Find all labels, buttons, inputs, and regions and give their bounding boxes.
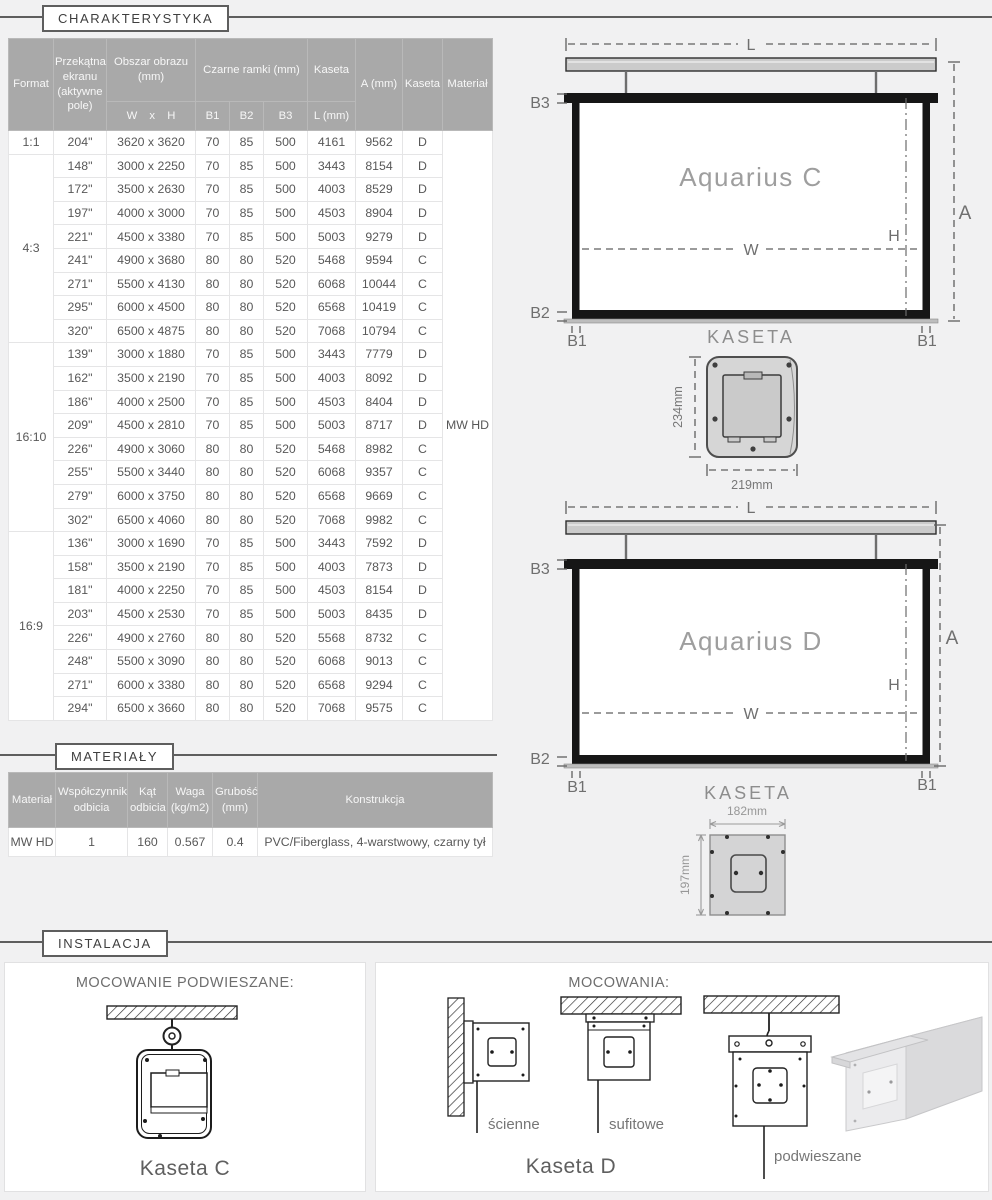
col-material: Materiał — [443, 39, 493, 131]
cell-b1: 80 — [196, 673, 230, 697]
b3-annotation: B3 — [530, 560, 567, 578]
cell-b2: 85 — [230, 178, 264, 202]
cell-image-area: 4900 x 3680 — [107, 248, 196, 272]
spec-row: 221"4500 x 3380708550050039279D — [9, 225, 493, 249]
col-b1: B1 — [196, 102, 230, 131]
cell-image-area: 4900 x 3060 — [107, 437, 196, 461]
spec-row: 226"4900 x 2760808052055688732C — [9, 626, 493, 650]
cell-image-area: 4900 x 2760 — [107, 626, 196, 650]
spec-row: 302"6500 x 4060808052070689982C — [9, 508, 493, 532]
cell-kaseta-type: D — [403, 579, 443, 603]
width-dimension: 219mm — [707, 464, 797, 492]
cell-image-area: 5500 x 4130 — [107, 272, 196, 296]
cell-b1: 80 — [196, 484, 230, 508]
cell-a: 9013 — [356, 650, 403, 674]
cassette-bar — [566, 58, 936, 94]
cell-l: 7068 — [308, 697, 356, 721]
spec-row: 295"6000 x 45008080520656810419C — [9, 296, 493, 320]
cell-l: 5003 — [308, 602, 356, 626]
cell-b1: 80 — [196, 296, 230, 320]
cell-l: 6568 — [308, 673, 356, 697]
cell-image-area: 6500 x 4060 — [107, 508, 196, 532]
col-b3: B3 — [264, 102, 308, 131]
cell-image-area: 5500 x 3090 — [107, 650, 196, 674]
cell-b2: 85 — [230, 602, 264, 626]
cell-a: 10419 — [356, 296, 403, 320]
ceiling-mount-drawing: sufitowe — [561, 997, 681, 1133]
cell-b2: 80 — [230, 248, 264, 272]
width-dimension — [710, 819, 785, 829]
cell-a: 7779 — [356, 343, 403, 367]
cell-l: 3443 — [308, 343, 356, 367]
cell-b3: 500 — [264, 390, 308, 414]
spec-row: 16:10139"3000 x 1880708550034437779D — [9, 343, 493, 367]
kaseta-d-mounting-drawings: ścienne sufitowe — [376, 991, 988, 1189]
cell-a: 8092 — [356, 366, 403, 390]
spec-row: 16:9136"3000 x 1690708550034437592D — [9, 532, 493, 556]
cell-a: 8904 — [356, 201, 403, 225]
cassette-bar — [566, 521, 936, 560]
reflection-cell: 1 — [56, 828, 128, 857]
material-row: MW HD 1 160 0.567 0.4 PVC/Fiberglass, 4-… — [9, 828, 493, 857]
h-label: H — [888, 677, 900, 694]
cross-height-label: 197mm — [678, 855, 692, 895]
cassette-3d-render — [832, 1017, 982, 1131]
cell-b3: 520 — [264, 508, 308, 532]
cell-b1: 80 — [196, 461, 230, 485]
cell-l: 6568 — [308, 296, 356, 320]
cell-diagonal: 255" — [54, 461, 107, 485]
cell-b3: 500 — [264, 343, 308, 367]
a-dimension: A — [948, 62, 972, 321]
cell-b1: 70 — [196, 555, 230, 579]
b1-left-label: B1 — [567, 779, 587, 796]
cell-b3: 520 — [264, 697, 308, 721]
cell-l: 6568 — [308, 484, 356, 508]
cell-b1: 70 — [196, 131, 230, 155]
cell-b2: 85 — [230, 343, 264, 367]
col-construction: Konstrukcja — [258, 773, 493, 828]
cell-l: 6068 — [308, 650, 356, 674]
spec-row: 158"3500 x 2190708550040037873D — [9, 555, 493, 579]
cell-a: 7592 — [356, 532, 403, 556]
cell-b3: 520 — [264, 461, 308, 485]
height-dimension: 197mm — [678, 835, 706, 915]
cell-kaseta-type: D — [403, 390, 443, 414]
cell-diagonal: 181" — [54, 579, 107, 603]
cell-image-area: 4000 x 2500 — [107, 390, 196, 414]
b3-label: B3 — [530, 95, 550, 112]
screen — [564, 93, 938, 323]
format-cell: 16:9 — [9, 532, 54, 721]
cell-a: 10044 — [356, 272, 403, 296]
b2-annotation: B2 — [530, 305, 567, 322]
cell-diagonal: 197" — [54, 201, 107, 225]
cell-a: 7873 — [356, 555, 403, 579]
cell-image-area: 3000 x 2250 — [107, 154, 196, 178]
cell-diagonal: 162" — [54, 366, 107, 390]
a-label: A — [946, 628, 959, 649]
spec-table: Format Przekątna ekranu (aktywne pole) O… — [8, 38, 493, 721]
kaseta-d-cross-section: 182mm 197mm — [655, 800, 845, 940]
spec-row: 172"3500 x 2630708550040038529D — [9, 178, 493, 202]
l-label: L — [747, 500, 756, 517]
cell-l: 6068 — [308, 461, 356, 485]
ceiling — [107, 1006, 237, 1019]
w-label: W — [743, 706, 759, 723]
cell-kaseta-type: C — [403, 437, 443, 461]
cross-width-label: 182mm — [727, 804, 767, 818]
spec-row: 226"4900 x 3060808052054688982C — [9, 437, 493, 461]
cassette-d-body — [710, 835, 785, 915]
col-a-mm: A (mm) — [356, 39, 403, 131]
cell-a: 8982 — [356, 437, 403, 461]
cell-b2: 85 — [230, 390, 264, 414]
cell-kaseta-type: C — [403, 272, 443, 296]
cell-b1: 70 — [196, 602, 230, 626]
cell-a: 10794 — [356, 319, 403, 343]
cell-b3: 520 — [264, 272, 308, 296]
b1-right-label: B1 — [917, 777, 937, 794]
cell-kaseta-type: D — [403, 532, 443, 556]
spec-row: 197"4000 x 3000708550045038904D — [9, 201, 493, 225]
cell-b3: 500 — [264, 555, 308, 579]
col-image-area: Obszar obrazu (mm) — [107, 39, 196, 102]
cell-a: 9279 — [356, 225, 403, 249]
cell-image-area: 3500 x 2190 — [107, 555, 196, 579]
col-material: Materiał — [9, 773, 56, 828]
cell-kaseta-type: C — [403, 319, 443, 343]
spec-sheet-page: CHARAKTERYSTYKA Format Przekątna ekranu … — [0, 0, 992, 1200]
format-cell: 1:1 — [9, 131, 54, 155]
cassette — [137, 1050, 211, 1138]
cell-b3: 520 — [264, 319, 308, 343]
cell-image-area: 4500 x 2530 — [107, 602, 196, 626]
cell-b3: 500 — [264, 366, 308, 390]
cell-l: 5003 — [308, 225, 356, 249]
cell-kaseta-type: C — [403, 697, 443, 721]
col-wxh: W x H — [107, 102, 196, 131]
installation-box-kaseta-c: MOCOWANIE PODWIESZANE: — [4, 962, 366, 1192]
cell-b2: 80 — [230, 626, 264, 650]
l-label: L — [747, 37, 756, 54]
col-black-borders: Czarne ramki (mm) — [196, 39, 308, 102]
cell-b2: 80 — [230, 673, 264, 697]
material-cell: MW HD — [9, 828, 56, 857]
screen-title: Aquarius D — [679, 626, 823, 656]
cell-diagonal: 226" — [54, 437, 107, 461]
col-thickness: Grubość (mm) — [213, 773, 258, 828]
cell-image-area: 3500 x 2190 — [107, 366, 196, 390]
spec-row: 181"4000 x 2250708550045038154D — [9, 579, 493, 603]
col-diagonal: Przekątna ekranu (aktywne pole) — [54, 39, 107, 131]
cell-a: 9562 — [356, 131, 403, 155]
weight-cell: 0.567 — [168, 828, 213, 857]
cell-l: 7068 — [308, 319, 356, 343]
cell-diagonal: 241" — [54, 248, 107, 272]
cell-image-area: 6500 x 4875 — [107, 319, 196, 343]
cell-b2: 80 — [230, 437, 264, 461]
cell-b3: 520 — [264, 673, 308, 697]
thickness-cell: 0.4 — [213, 828, 258, 857]
spec-table-body: 1:1204"3620 x 3620708550041619562DMW HD4… — [9, 131, 493, 721]
screen — [564, 559, 938, 768]
spec-row: 279"6000 x 3750808052065689669C — [9, 484, 493, 508]
cell-kaseta-type: D — [403, 178, 443, 202]
cell-l: 4161 — [308, 131, 356, 155]
cell-b2: 85 — [230, 414, 264, 438]
cell-kaseta-type: D — [403, 414, 443, 438]
cell-b1: 70 — [196, 390, 230, 414]
cell-diagonal: 302" — [54, 508, 107, 532]
format-cell: 16:10 — [9, 343, 54, 532]
cell-diagonal: 136" — [54, 532, 107, 556]
cell-b1: 80 — [196, 437, 230, 461]
cell-b2: 85 — [230, 532, 264, 556]
spec-row: 162"3500 x 2190708550040038092D — [9, 366, 493, 390]
kaseta-c-suspended-drawing — [5, 999, 365, 1151]
cell-kaseta-type: C — [403, 248, 443, 272]
cell-b3: 520 — [264, 248, 308, 272]
cell-l: 7068 — [308, 508, 356, 532]
mounting-title: MOCOWANIE PODWIESZANE: — [5, 975, 365, 991]
cell-b3: 500 — [264, 414, 308, 438]
cell-kaseta-type: C — [403, 296, 443, 320]
cell-diagonal: 139" — [54, 343, 107, 367]
cell-image-area: 4000 x 3000 — [107, 201, 196, 225]
w-label: W — [743, 242, 759, 259]
ceiling-mount-label: sufitowe — [609, 1116, 664, 1133]
cell-b3: 500 — [264, 602, 308, 626]
cell-a: 9594 — [356, 248, 403, 272]
cell-b1: 70 — [196, 154, 230, 178]
cell-b2: 80 — [230, 272, 264, 296]
cell-b3: 520 — [264, 626, 308, 650]
cell-diagonal: 158" — [54, 555, 107, 579]
cell-b2: 85 — [230, 555, 264, 579]
spec-row: 271"6000 x 3380808052065689294C — [9, 673, 493, 697]
cell-b3: 500 — [264, 225, 308, 249]
cell-b3: 500 — [264, 579, 308, 603]
cell-image-area: 3000 x 1690 — [107, 532, 196, 556]
cell-diagonal: 148" — [54, 154, 107, 178]
section-title-charakterystyka: CHARAKTERYSTYKA — [42, 5, 229, 32]
wall-mount-drawing: ścienne — [448, 998, 540, 1133]
cell-b1: 70 — [196, 343, 230, 367]
cell-kaseta-type: D — [403, 225, 443, 249]
suspended-mount-label: podwieszane — [774, 1148, 862, 1165]
cell-b2: 85 — [230, 579, 264, 603]
cell-a: 9982 — [356, 508, 403, 532]
b3-label: B3 — [530, 561, 550, 578]
spec-row: 4:3148"3000 x 2250708550034438154D — [9, 154, 493, 178]
cell-l: 4503 — [308, 201, 356, 225]
cell-image-area: 6000 x 3380 — [107, 673, 196, 697]
cell-b2: 80 — [230, 697, 264, 721]
aquarius-c-diagram: L Aquarius C W H A — [520, 33, 992, 351]
cell-l: 5568 — [308, 626, 356, 650]
cell-kaseta-type: C — [403, 484, 443, 508]
l-dimension: L — [566, 500, 936, 517]
cell-b2: 80 — [230, 461, 264, 485]
installation-box-kaseta-d: MOCOWANIA: ścienne — [375, 962, 989, 1192]
cross-width-label: 219mm — [731, 478, 773, 492]
mountings-title: MOCOWANIA: — [376, 975, 862, 991]
cell-a: 9669 — [356, 484, 403, 508]
cell-image-area: 5500 x 3440 — [107, 461, 196, 485]
cell-b1: 70 — [196, 201, 230, 225]
cell-kaseta-type: C — [403, 626, 443, 650]
aquarius-d-diagram: L Aquarius D W H A — [520, 498, 992, 810]
l-dimension: L — [566, 37, 936, 54]
cell-l: 5468 — [308, 437, 356, 461]
col-format: Format — [9, 39, 54, 131]
cell-diagonal: 203" — [54, 602, 107, 626]
cell-image-area: 3000 x 1880 — [107, 343, 196, 367]
cell-kaseta-type: C — [403, 508, 443, 532]
cell-diagonal: 248" — [54, 650, 107, 674]
spec-row: 271"5500 x 41308080520606810044C — [9, 272, 493, 296]
cell-a: 8154 — [356, 579, 403, 603]
cell-kaseta-type: C — [403, 650, 443, 674]
cell-kaseta-type: D — [403, 366, 443, 390]
cell-kaseta-type: D — [403, 154, 443, 178]
b2-label: B2 — [530, 305, 550, 322]
cell-kaseta-type: D — [403, 201, 443, 225]
b3-annotation: B3 — [530, 94, 567, 112]
cell-l: 3443 — [308, 532, 356, 556]
cell-l: 4003 — [308, 178, 356, 202]
cell-b1: 70 — [196, 579, 230, 603]
cell-kaseta-type: C — [403, 673, 443, 697]
cell-diagonal: 204" — [54, 131, 107, 155]
kaseta-d-caption: Kaseta D — [501, 1155, 641, 1179]
cell-diagonal: 226" — [54, 626, 107, 650]
cell-image-area: 3620 x 3620 — [107, 131, 196, 155]
cell-diagonal: 294" — [54, 697, 107, 721]
cell-a: 9357 — [356, 461, 403, 485]
cell-a: 8404 — [356, 390, 403, 414]
cell-a: 8154 — [356, 154, 403, 178]
cell-b2: 80 — [230, 484, 264, 508]
format-cell: 4:3 — [9, 154, 54, 343]
cell-b2: 85 — [230, 366, 264, 390]
cell-b2: 80 — [230, 650, 264, 674]
a-label: A — [959, 203, 972, 224]
cell-l: 4503 — [308, 390, 356, 414]
cell-b3: 520 — [264, 650, 308, 674]
cell-kaseta-type: D — [403, 555, 443, 579]
col-kaseta-l: Kaseta — [308, 39, 356, 102]
cell-l: 5468 — [308, 248, 356, 272]
h-label: H — [888, 228, 900, 245]
cell-diagonal: 271" — [54, 673, 107, 697]
hook — [164, 1019, 181, 1050]
cell-l: 5003 — [308, 414, 356, 438]
cell-l: 4503 — [308, 579, 356, 603]
cell-a: 8435 — [356, 602, 403, 626]
cell-b3: 500 — [264, 201, 308, 225]
cell-b3: 500 — [264, 154, 308, 178]
height-dimension: 234mm — [671, 357, 701, 457]
cell-kaseta-type: D — [403, 343, 443, 367]
cell-diagonal: 209" — [54, 414, 107, 438]
spec-row: 203"4500 x 2530708550050038435D — [9, 602, 493, 626]
materials-table: Materiał Współczynnik odbicia Kąt odbici… — [8, 772, 493, 857]
cell-diagonal: 221" — [54, 225, 107, 249]
kaseta-c-caption: Kaseta C — [115, 1157, 255, 1181]
cell-b1: 70 — [196, 366, 230, 390]
cell-b1: 80 — [196, 508, 230, 532]
cell-b3: 520 — [264, 437, 308, 461]
col-kaseta-type: Kaseta — [403, 39, 443, 131]
cell-b3: 500 — [264, 131, 308, 155]
cell-image-area: 4000 x 2250 — [107, 579, 196, 603]
col-b2: B2 — [230, 102, 264, 131]
cell-l: 6068 — [308, 272, 356, 296]
spec-row: 209"4500 x 2810708550050038717D — [9, 414, 493, 438]
cell-kaseta-type: C — [403, 461, 443, 485]
col-angle: Kąt odbicia — [128, 773, 168, 828]
cell-b3: 520 — [264, 484, 308, 508]
cell-image-area: 6500 x 3660 — [107, 697, 196, 721]
cell-image-area: 3500 x 2630 — [107, 178, 196, 202]
cell-diagonal: 295" — [54, 296, 107, 320]
spec-row: 186"4000 x 2500708550045038404D — [9, 390, 493, 414]
cell-b3: 500 — [264, 532, 308, 556]
cell-b2: 85 — [230, 131, 264, 155]
cell-b1: 80 — [196, 626, 230, 650]
cell-b1: 80 — [196, 272, 230, 296]
b2-label: B2 — [530, 751, 550, 768]
cell-a: 8732 — [356, 626, 403, 650]
cell-b2: 80 — [230, 508, 264, 532]
cell-b1: 70 — [196, 178, 230, 202]
cell-l: 4003 — [308, 555, 356, 579]
cell-a: 9294 — [356, 673, 403, 697]
screen-title: Aquarius C — [679, 162, 823, 192]
spec-row: 320"6500 x 48758080520706810794C — [9, 319, 493, 343]
cell-b3: 520 — [264, 296, 308, 320]
col-l-mm: L (mm) — [308, 102, 356, 131]
b1-right-label: B1 — [917, 333, 937, 350]
cell-b2: 85 — [230, 154, 264, 178]
cell-b2: 80 — [230, 319, 264, 343]
cell-l: 4003 — [308, 366, 356, 390]
cell-l: 3443 — [308, 154, 356, 178]
col-weight: Waga (kg/m2) — [168, 773, 213, 828]
cell-image-area: 6000 x 4500 — [107, 296, 196, 320]
cell-diagonal: 271" — [54, 272, 107, 296]
cell-b2: 85 — [230, 201, 264, 225]
cell-diagonal: 172" — [54, 178, 107, 202]
spec-row: 294"6500 x 3660808052070689575C — [9, 697, 493, 721]
kaseta-c-cross-section: 234mm 219mm — [650, 342, 850, 494]
spec-row: 255"5500 x 3440808052060689357C — [9, 461, 493, 485]
cell-image-area: 4500 x 3380 — [107, 225, 196, 249]
cell-kaseta-type: D — [403, 131, 443, 155]
cell-b1: 70 — [196, 532, 230, 556]
b1-left-label: B1 — [567, 333, 587, 350]
cell-b1: 70 — [196, 225, 230, 249]
spec-row: 1:1204"3620 x 3620708550041619562DMW HD — [9, 131, 493, 155]
cell-diagonal: 279" — [54, 484, 107, 508]
cell-b1: 70 — [196, 414, 230, 438]
suspended-mount-drawing: podwieszane — [704, 996, 862, 1179]
cell-b1: 80 — [196, 248, 230, 272]
spec-row: 248"5500 x 3090808052060689013C — [9, 650, 493, 674]
cell-b1: 80 — [196, 650, 230, 674]
